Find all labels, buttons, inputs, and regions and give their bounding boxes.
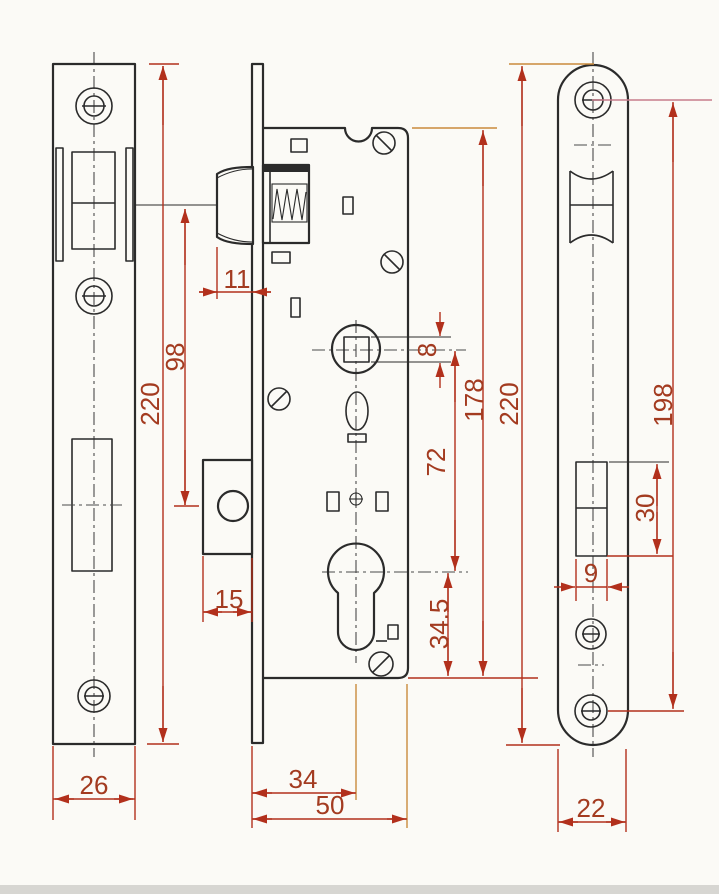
dim-label-case-depth: 50 bbox=[316, 790, 345, 820]
drawing-canvas: 220 98 11 15 8 72 bbox=[0, 0, 719, 894]
scan-edge bbox=[0, 885, 719, 894]
dim-label-strike-plate-height: 220 bbox=[135, 382, 165, 425]
dim-label-deadbolt-cutout-height: 30 bbox=[630, 494, 660, 523]
paper-background bbox=[0, 0, 719, 894]
dim-label-deadbolt-cutout-width: 9 bbox=[584, 558, 598, 588]
dim-label-spindle-to-cylinder: 72 bbox=[421, 448, 451, 477]
dim-label-case-height: 178 bbox=[459, 378, 489, 421]
dim-label-screw-centers: 198 bbox=[648, 383, 678, 426]
deadbolt bbox=[203, 460, 252, 554]
dim-label-faceplate-width: 22 bbox=[577, 793, 606, 823]
dim-label-latch-to-deadbolt: 98 bbox=[160, 343, 190, 372]
dim-label-faceplate-height: 220 bbox=[494, 382, 524, 425]
lock-technical-drawing: 220 98 11 15 8 72 bbox=[0, 0, 719, 894]
dim-label-latch-projection: 11 bbox=[224, 264, 251, 294]
dim-label-strike-plate-width: 26 bbox=[80, 770, 109, 800]
dim-label-cylinder-to-case-bottom: 34.5 bbox=[424, 599, 454, 650]
latch-spring-housing bbox=[263, 165, 309, 243]
latch-bolt bbox=[217, 167, 253, 244]
dim-label-backset: 34 bbox=[289, 764, 318, 794]
dim-label-deadbolt-throw: 15 bbox=[215, 584, 244, 614]
dim-label-spindle-square: 8 bbox=[412, 343, 442, 357]
